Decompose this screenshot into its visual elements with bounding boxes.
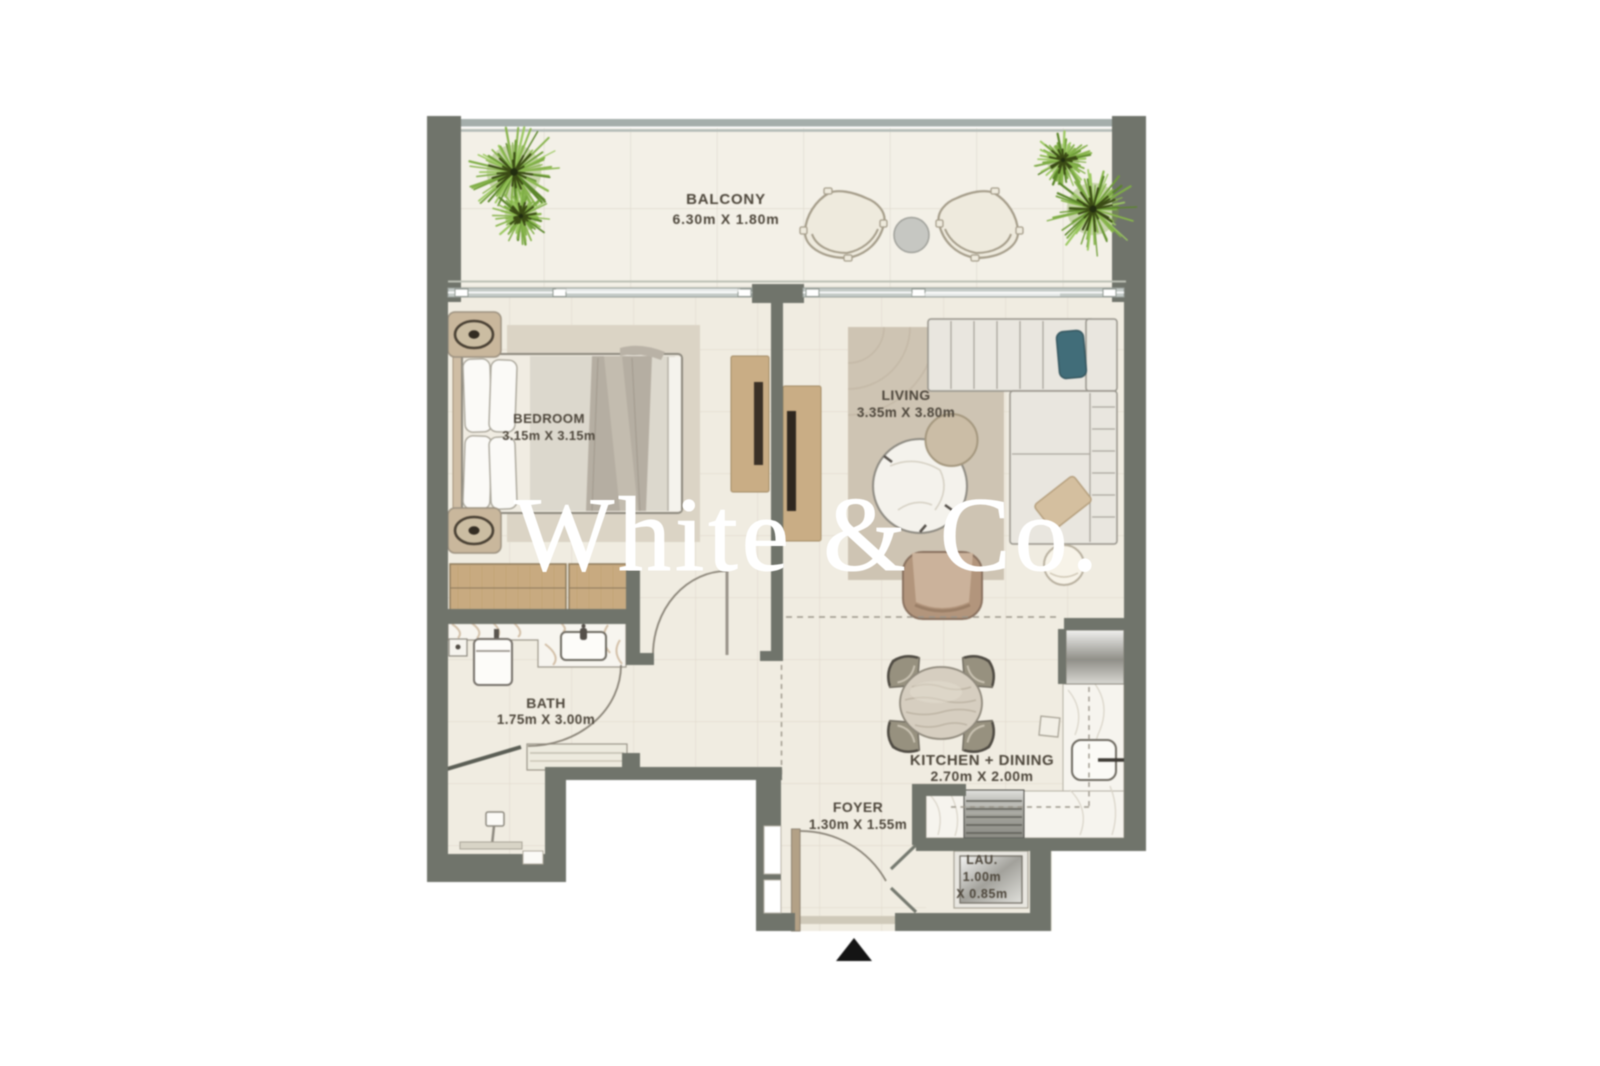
- svg-text:3.15m X 3.15m: 3.15m X 3.15m: [502, 428, 595, 443]
- svg-text:BATH: BATH: [526, 695, 565, 711]
- svg-text:FOYER: FOYER: [833, 799, 883, 815]
- svg-text:LAU.: LAU.: [966, 853, 998, 867]
- svg-text:2.70m X 2.00m: 2.70m X 2.00m: [930, 768, 1033, 784]
- svg-text:BALCONY: BALCONY: [686, 191, 766, 208]
- svg-text:3.35m X 3.80m: 3.35m X 3.80m: [857, 405, 955, 420]
- svg-text:White & Co.: White & Co.: [514, 476, 1098, 593]
- svg-text:LIVING: LIVING: [881, 387, 930, 403]
- svg-text:6.30m X 1.80m: 6.30m X 1.80m: [673, 211, 780, 227]
- svg-text:1.30m X 1.55m: 1.30m X 1.55m: [809, 817, 907, 832]
- svg-text:X 0.85m: X 0.85m: [956, 887, 1007, 901]
- svg-text:1.75m X 3.00m: 1.75m X 3.00m: [497, 712, 595, 727]
- svg-text:1.00m: 1.00m: [963, 870, 1001, 884]
- svg-text:BEDROOM: BEDROOM: [513, 411, 585, 426]
- svg-text:KITCHEN + DINING: KITCHEN + DINING: [910, 752, 1054, 769]
